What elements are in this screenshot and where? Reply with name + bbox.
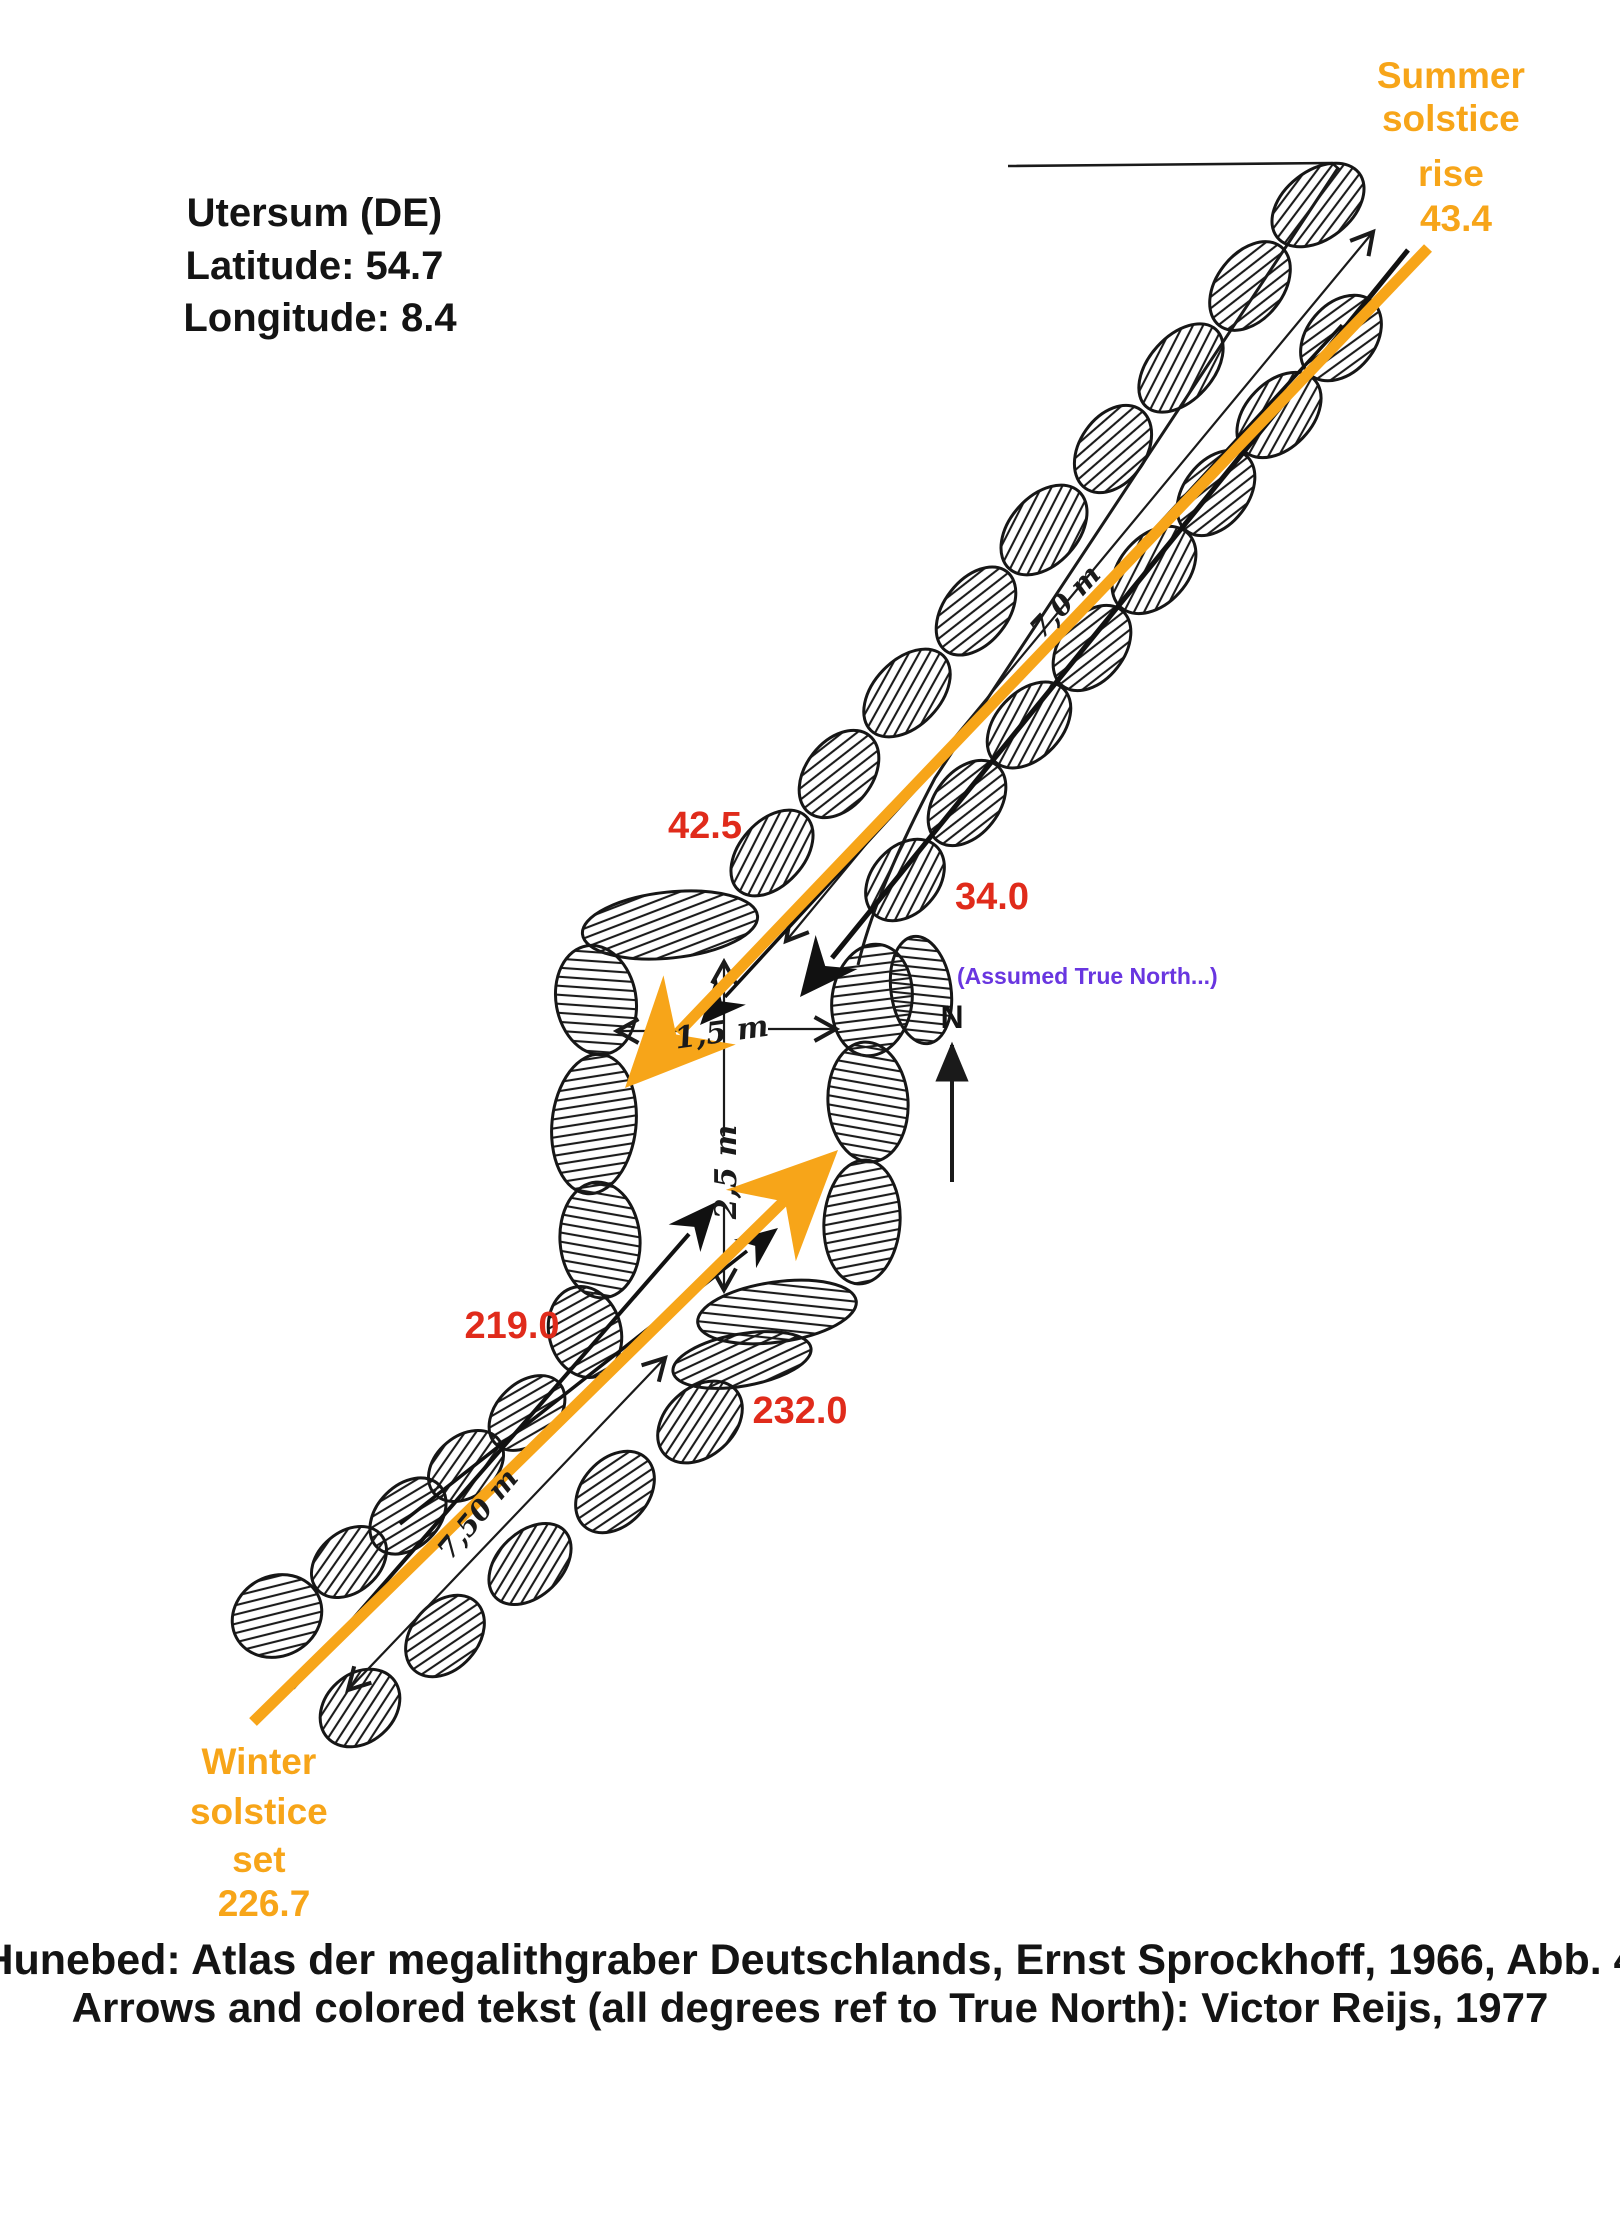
- hunebed-plan-figure: N Utersum (DE) Latitude: 54.7 Longitude:…: [0, 0, 1620, 2230]
- stone: [820, 1158, 904, 1287]
- winter-azimuth-value: 226.7: [218, 1883, 311, 1924]
- stone: [556, 1179, 644, 1300]
- stone: [824, 1039, 912, 1164]
- arrow-shaft: [253, 1199, 786, 1722]
- stone: [560, 1436, 671, 1549]
- summer-line-3: rise: [1418, 153, 1484, 194]
- upper-left-stone-row: [715, 146, 1380, 911]
- site-name: Utersum (DE): [187, 191, 443, 235]
- north-letter: N: [940, 999, 963, 1035]
- site-longitude: Longitude: 8.4: [183, 296, 457, 340]
- winter-line-1: Winter: [201, 1741, 316, 1782]
- azimuth-label-219-0: 219.0: [464, 1305, 559, 1347]
- winter-line-3: set: [232, 1839, 285, 1880]
- caption-line-2: Arrows and colored tekst (all degrees re…: [72, 1984, 1549, 2031]
- arrow-shaft: [678, 248, 1428, 1033]
- site-latitude: Latitude: 54.7: [186, 244, 444, 288]
- chamber-length-dimension-label: 2,5 m: [709, 1125, 744, 1220]
- site-info-block: Utersum (DE) Latitude: 54.7 Longitude: 8…: [183, 191, 457, 340]
- summer-azimuth-value: 43.4: [1420, 198, 1492, 239]
- stone: [545, 1050, 643, 1198]
- summer-solstice-arrow: [589, 248, 1428, 1123]
- lower-left-stone-row: [218, 1361, 580, 1673]
- compass: N: [940, 999, 963, 1182]
- azimuth-label-34-0: 34.0: [955, 876, 1029, 918]
- plan-canvas: N Utersum (DE) Latitude: 54.7 Longitude:…: [0, 0, 1620, 2230]
- true-north-note: (Assumed True North...): [957, 963, 1218, 989]
- summer-line-1: Summer: [1377, 55, 1525, 96]
- top-border-line: [1008, 163, 1340, 170]
- azimuth-label-42-5: 42.5: [668, 805, 742, 847]
- summer-solstice-label: Summer solstice rise 43.4: [1377, 55, 1535, 239]
- caption-line-1: Hunebed: Atlas der megalithgraber Deutsc…: [0, 1936, 1620, 1984]
- azimuth-label-232-0: 232.0: [752, 1390, 847, 1432]
- stone: [390, 1580, 501, 1693]
- winter-solstice-label: Winter solstice set 226.7: [190, 1741, 338, 1924]
- winter-line-2: solstice: [190, 1791, 328, 1832]
- summer-line-2: solstice: [1382, 98, 1520, 139]
